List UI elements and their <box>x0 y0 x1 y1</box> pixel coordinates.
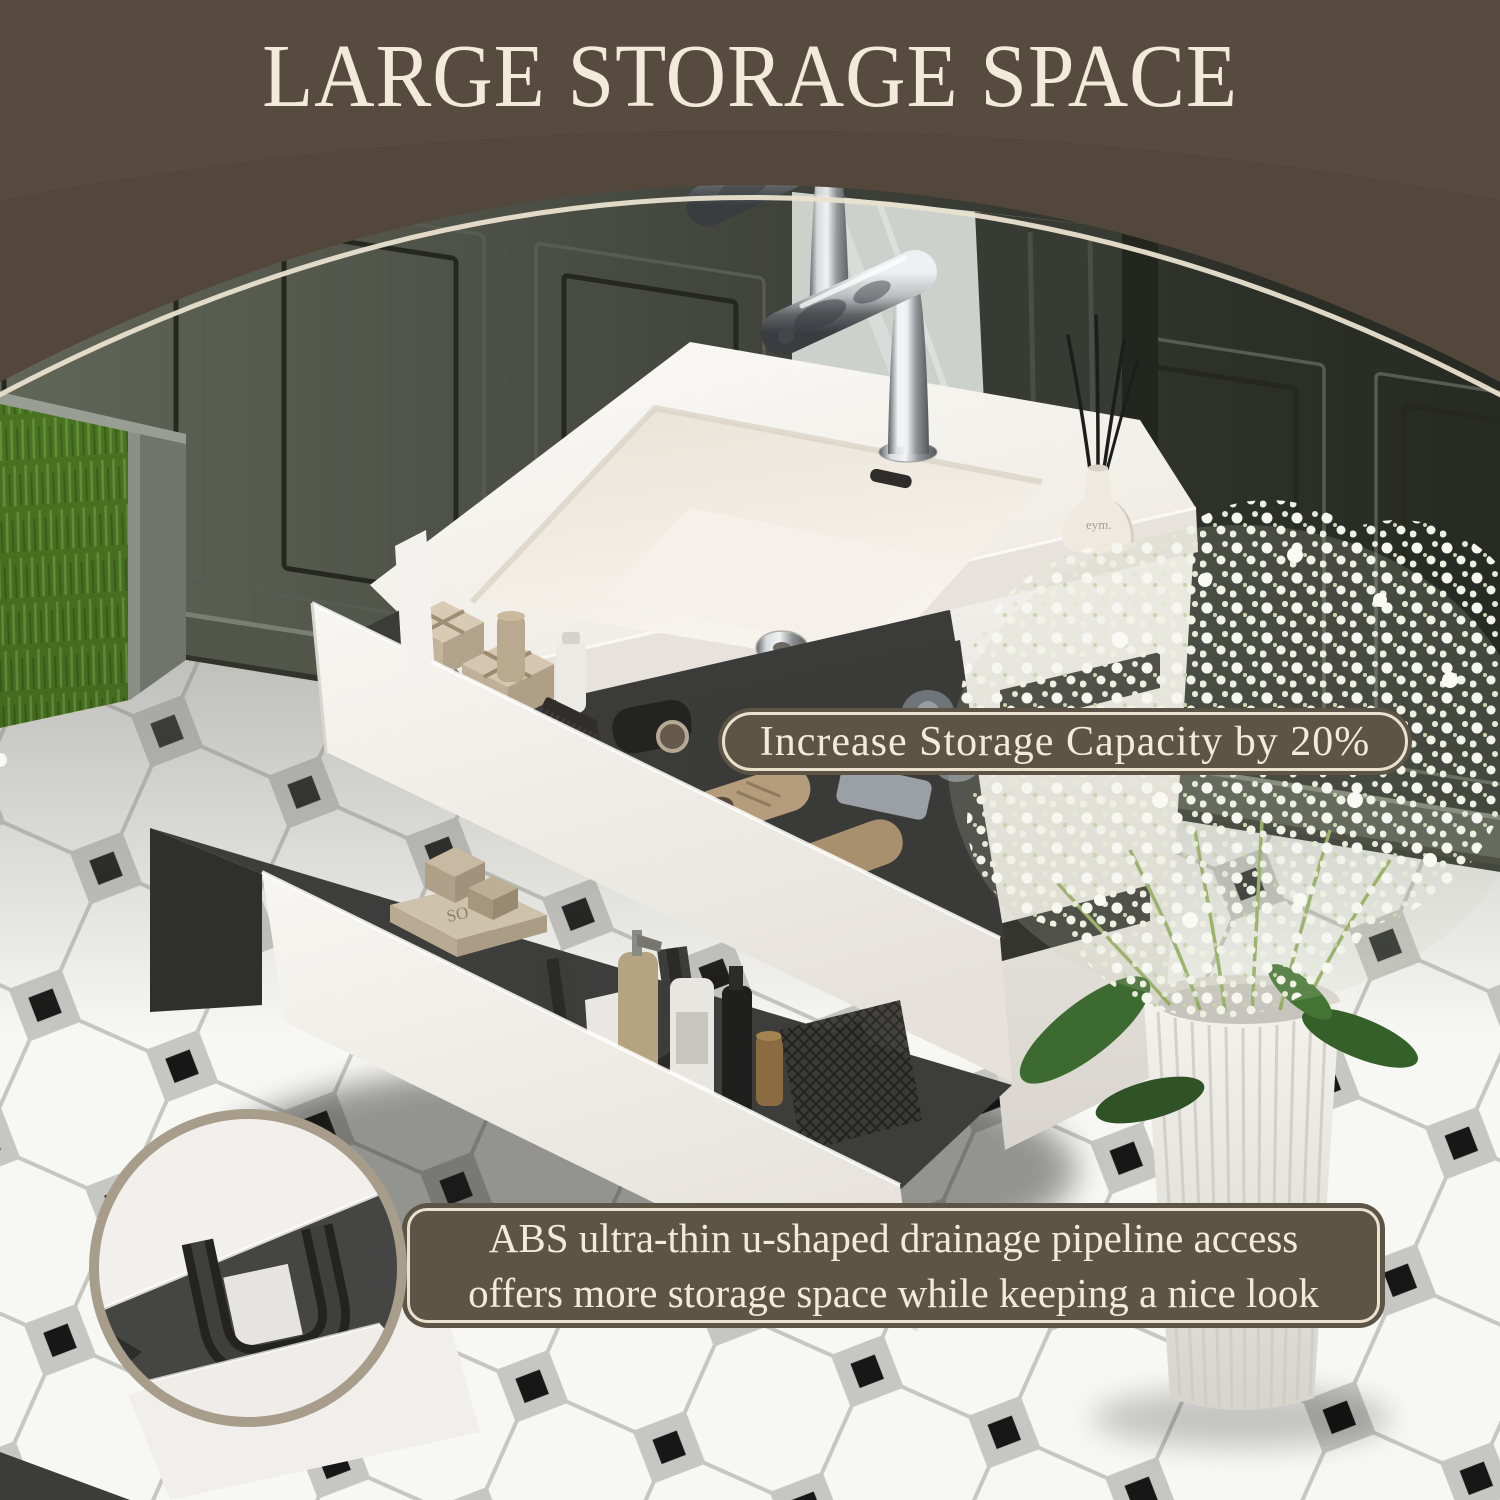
connector-dot <box>656 720 689 753</box>
inset-content <box>80 1100 416 1436</box>
page-title: LARGE STORAGE SPACE <box>53 30 1448 125</box>
diffuser-label: eym. <box>1086 517 1112 532</box>
callout-line-1: ABS ultra-thin u-shaped drainage pipelin… <box>489 1211 1299 1265</box>
callout-line-2: offers more storage space while keeping … <box>468 1266 1319 1320</box>
marketing-image: SO <box>0 0 1500 1500</box>
drainage-callout: ABS ultra-thin u-shaped drainage pipelin… <box>402 1203 1385 1328</box>
drawer-detail-inset <box>80 1100 416 1436</box>
capacity-badge: Increase Storage Capacity by 20% <box>718 708 1412 775</box>
capacity-badge-label: Increase Storage Capacity by 20% <box>722 712 1408 771</box>
flower-pot <box>1144 975 1340 1410</box>
